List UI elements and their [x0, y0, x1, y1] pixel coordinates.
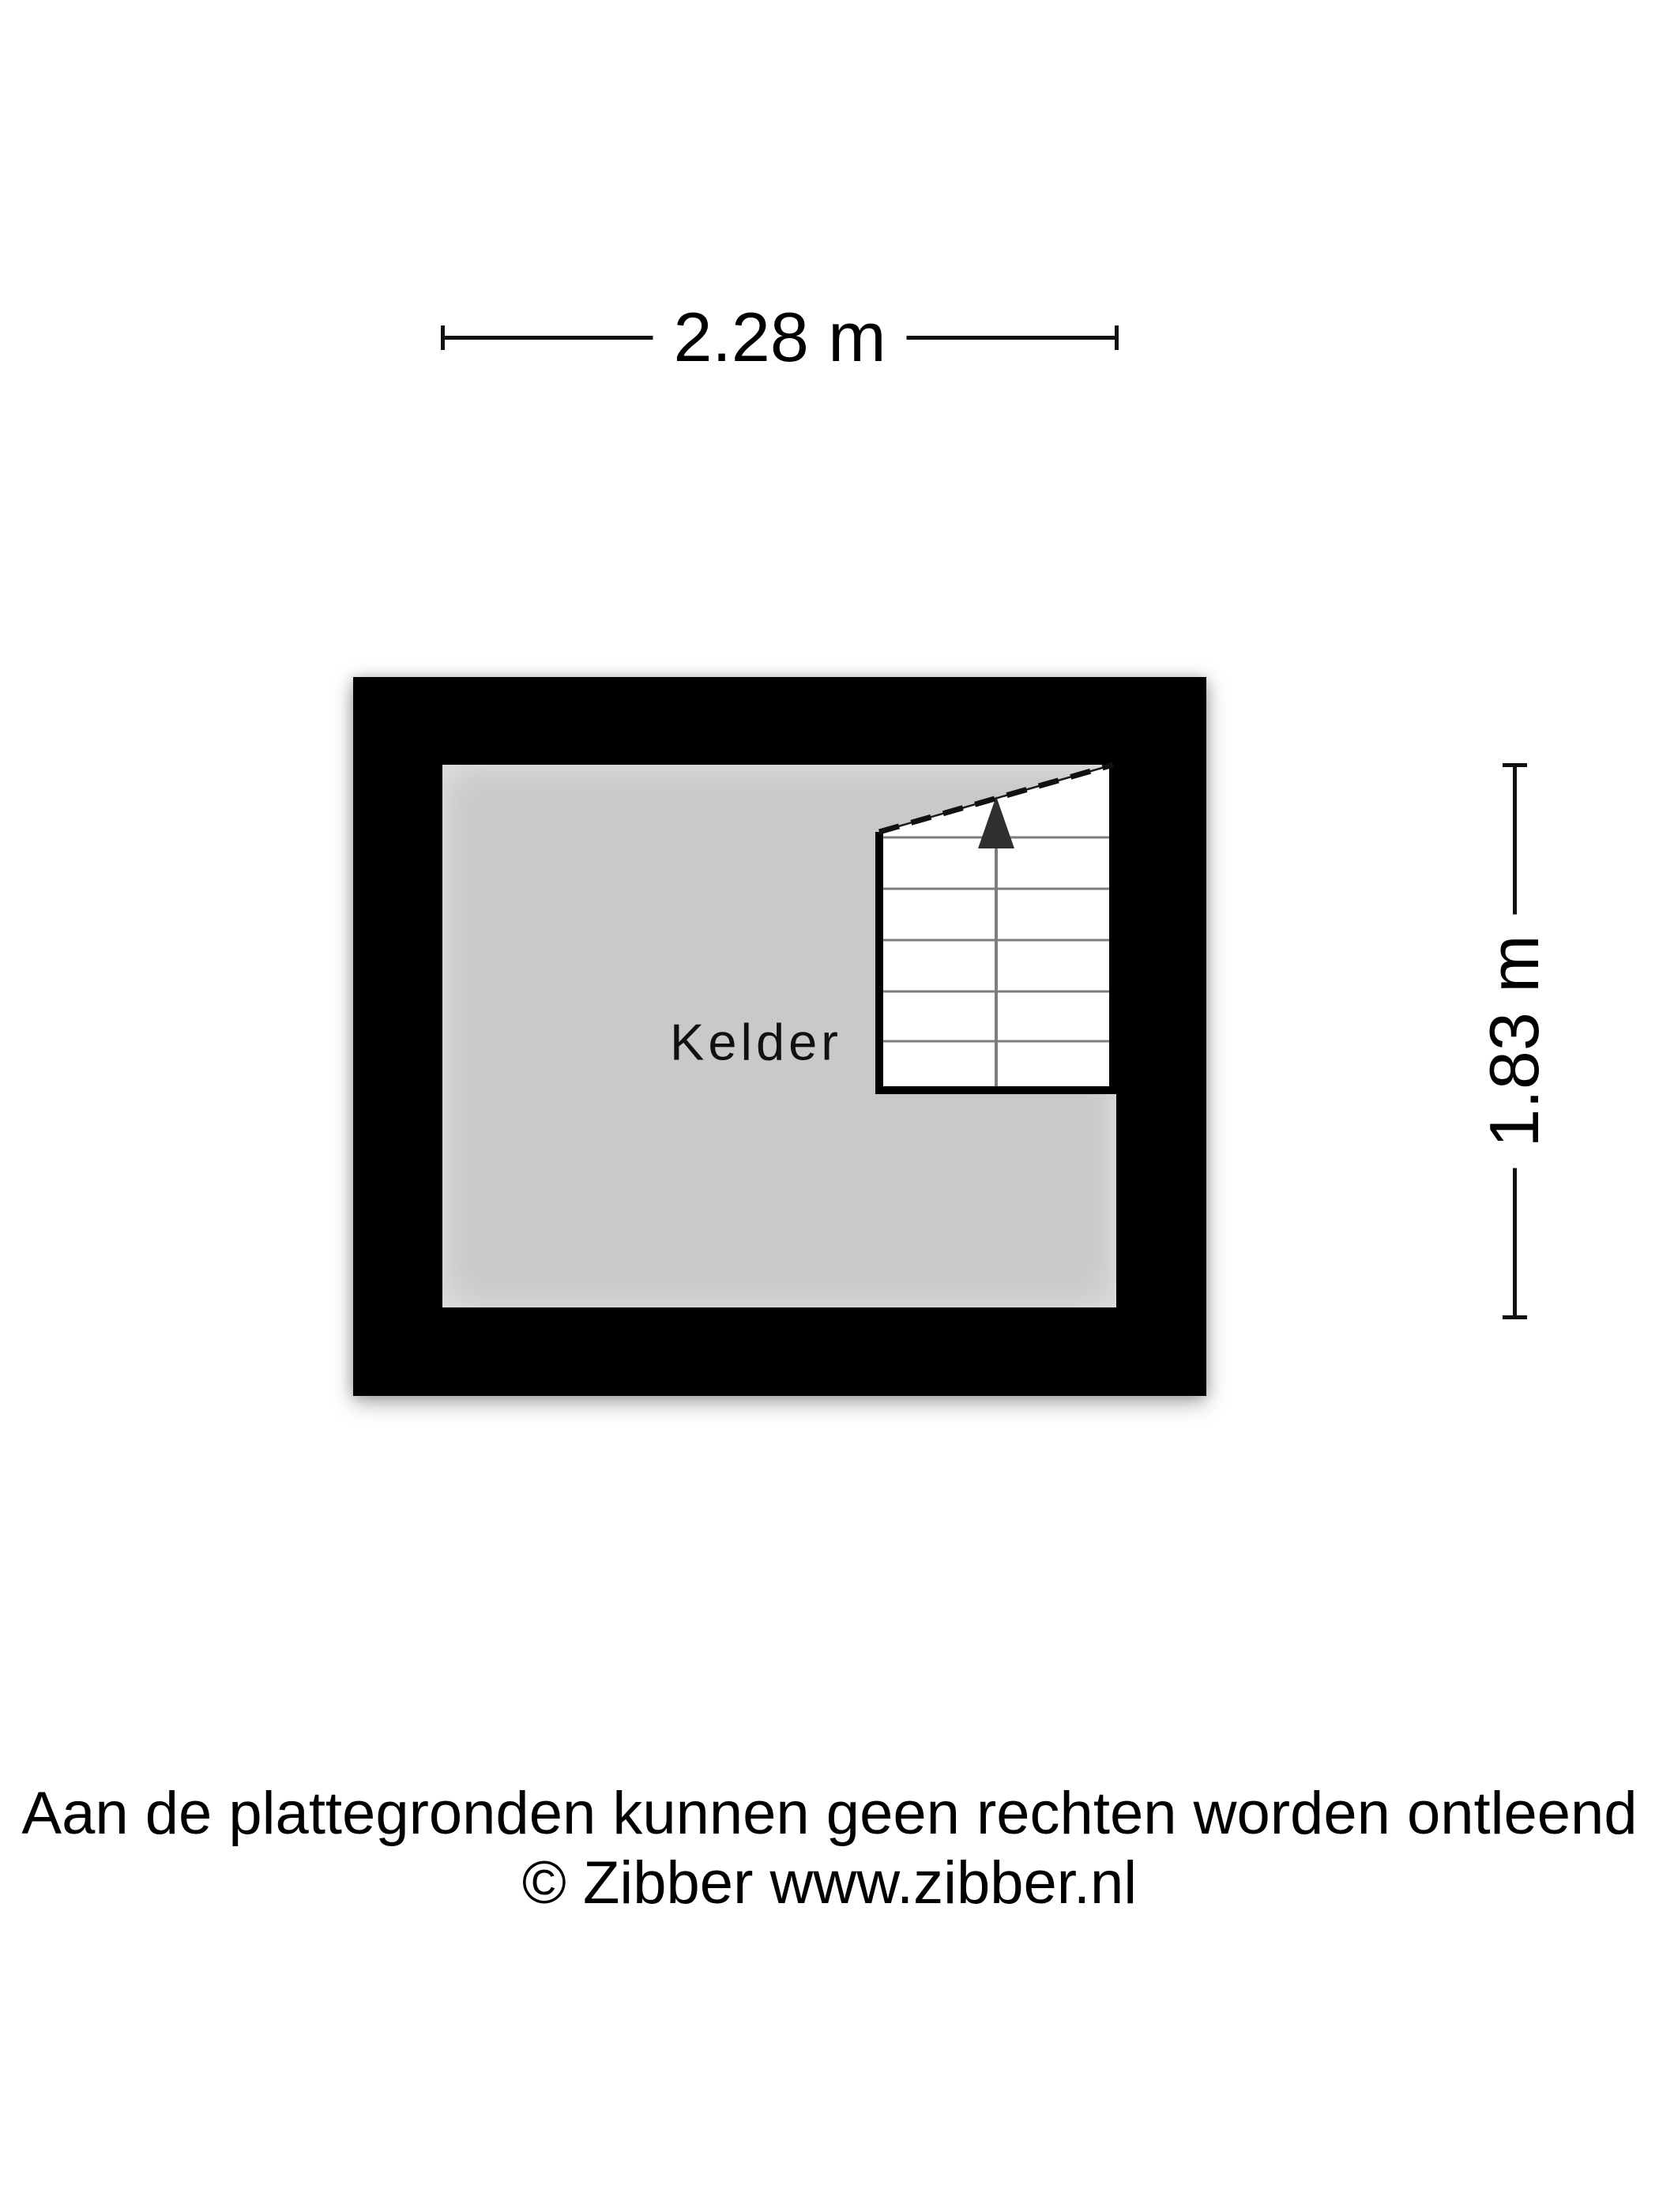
disclaimer-line1: Aan de plattegronden kunnen geen rechten…	[0, 1779, 1659, 1849]
width-dimension-tick-left	[441, 325, 445, 350]
floorplan-page: 2.28 m 1.83 m Kelder Aan d	[0, 0, 1659, 2212]
disclaimer-line2: © Zibber www.zibber.nl	[0, 1849, 1659, 1918]
width-dimension-label: 2.28 m	[653, 298, 906, 377]
width-dimension-tick-right	[1115, 325, 1119, 350]
room-label-kelder: Kelder	[670, 1017, 842, 1068]
height-dimension-tick-top	[1503, 763, 1527, 767]
height-dimension-label: 1.83 m	[1475, 914, 1554, 1168]
disclaimer: Aan de plattegronden kunnen geen rechten…	[0, 1779, 1659, 1918]
height-dimension-tick-bottom	[1503, 1315, 1527, 1319]
